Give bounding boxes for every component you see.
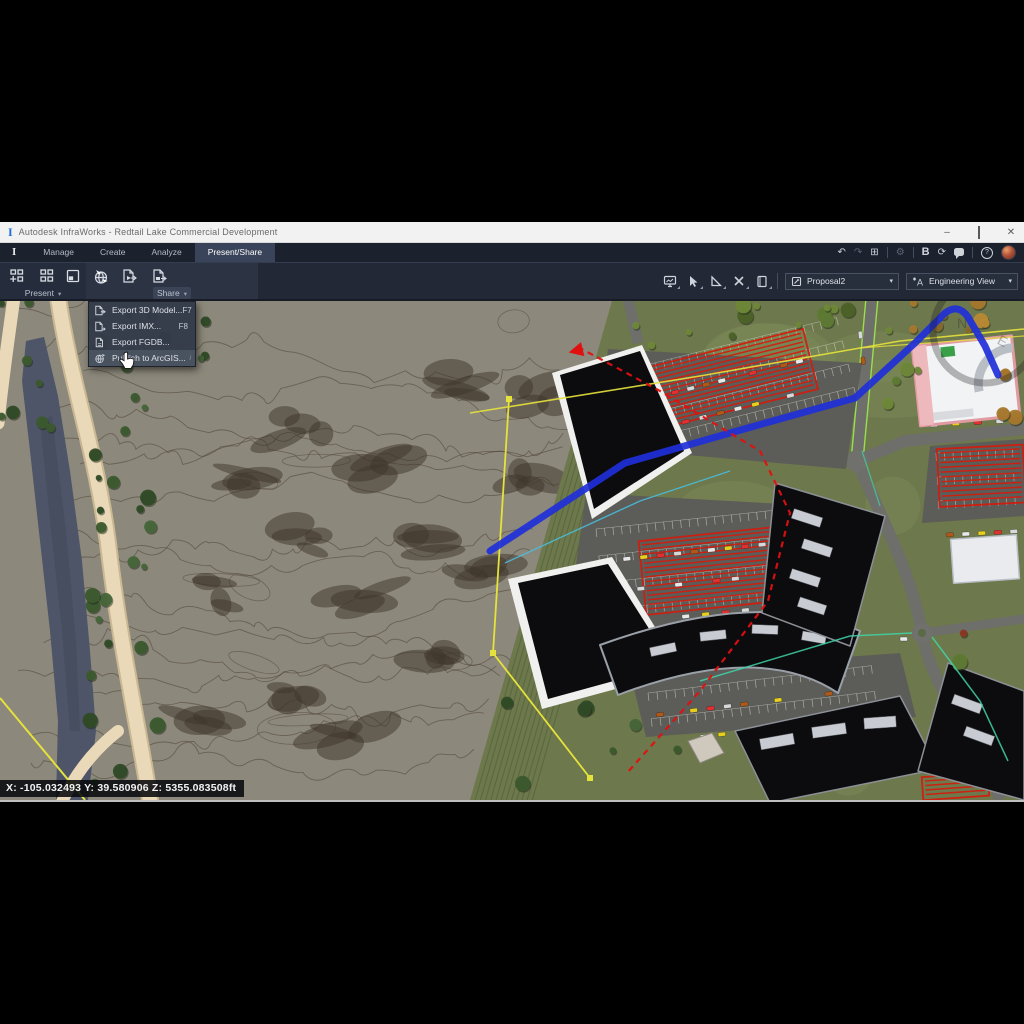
window-title: Autodesk InfraWorks - Redtail Lake Comme… (19, 227, 278, 237)
maximize-button[interactable] (972, 227, 986, 238)
minimize-button[interactable]: – (940, 227, 954, 238)
share-group-label[interactable]: Share▾ (86, 288, 258, 298)
windows-layout-icon[interactable]: ⊞ (870, 248, 878, 258)
redo-icon[interactable]: ↷ (854, 248, 862, 258)
chevron-down-icon: ▾ (1008, 277, 1012, 285)
storyboard-add-icon (9, 268, 25, 284)
flyout-tick-icon (746, 286, 749, 289)
sync-icon[interactable]: ⟳ (938, 248, 946, 258)
maximize-icon (978, 226, 980, 239)
share-group: Share▾ (86, 263, 258, 299)
render-frame-icon (65, 268, 81, 284)
ribbon-toolbar: Present▾ (0, 263, 1024, 301)
undo-icon[interactable]: ↶ (838, 248, 846, 258)
share-dropdown-open[interactable]: Share▾ (153, 287, 191, 299)
analysis-tool-button[interactable] (731, 273, 747, 289)
tab-analyze[interactable]: Analyze (139, 243, 195, 262)
view-style-icon: A (912, 276, 924, 287)
document-arrow-icon (94, 321, 106, 332)
menu-shortcut: F8 (179, 322, 195, 331)
chat-tail (956, 253, 962, 259)
select-tool-button[interactable] (685, 273, 701, 289)
menu-shortcut: F7 (182, 306, 198, 315)
storyboards-button[interactable] (36, 266, 58, 286)
set-square-icon (710, 275, 723, 287)
export-imx-button[interactable] (148, 266, 170, 286)
feedback-chat-icon[interactable] (954, 248, 964, 256)
title-bar[interactable]: I Autodesk InfraWorks - Redtail Lake Com… (0, 222, 1024, 243)
flyout-tick-icon (700, 286, 703, 289)
menu-item-publish-arcgis[interactable]: Publish to ArcGIS... i (89, 350, 195, 366)
app-window: I Autodesk InfraWorks - Redtail Lake Com… (0, 222, 1024, 802)
compass-north: N (957, 315, 967, 331)
export-model-button[interactable] (118, 266, 140, 286)
help-icon[interactable]: ? (981, 247, 993, 259)
menu-item-export-imx[interactable]: Export IMX... F8 (89, 318, 195, 334)
menu-item-export-fgdb[interactable]: Export FGDB... (89, 334, 195, 350)
svg-text:A: A (917, 277, 923, 287)
document-arrow-icon (151, 268, 168, 284)
viewport-3d-scene: N E (0, 301, 1024, 800)
present-label-text: Present (25, 288, 54, 298)
bim-b-icon[interactable]: B (922, 247, 930, 258)
user-avatar[interactable] (1001, 245, 1016, 260)
view-style-value: Engineering View (929, 276, 995, 286)
book-icon (756, 275, 768, 288)
monitor-icon (663, 275, 677, 288)
share-model-button[interactable] (90, 266, 112, 286)
flyout-tick-icon (723, 286, 726, 289)
proposal-select[interactable]: Proposal2 ▾ (785, 273, 899, 290)
separator (887, 247, 888, 258)
menu-item-label: Export 3D Model... (112, 305, 182, 315)
chevron-down-icon: ▾ (58, 291, 61, 298)
measure-tool-button[interactable] (708, 273, 724, 289)
flyout-tick-icon (677, 286, 680, 289)
chevron-down-icon: ▾ (184, 291, 187, 298)
journal-button[interactable] (754, 273, 770, 289)
view-tools: Proposal2 ▾ A Engineering View ▾ (662, 263, 1018, 299)
cursor-arrow-icon (687, 275, 699, 288)
storyboards-icon (39, 268, 55, 284)
model-viewport[interactable]: N E Export 3D Model... F7 Export (0, 301, 1024, 800)
separator (913, 247, 914, 258)
menu-item-export-3d-model[interactable]: Export 3D Model... F7 (89, 302, 195, 318)
view-style-select[interactable]: A Engineering View ▾ (906, 273, 1018, 290)
present-group: Present▾ (0, 263, 86, 299)
document-icon (94, 337, 106, 348)
document-export-icon (121, 268, 138, 284)
globe-publish-icon (94, 353, 106, 364)
proposal-value: Proposal2 (807, 276, 845, 286)
close-button[interactable]: ✕ (1004, 227, 1018, 238)
share-dropdown-menu: Export 3D Model... F7 Export IMX... F8 E… (88, 301, 196, 367)
quick-access-icons: ↶ ↷ ⊞ ⚙ B ⟳ ? (838, 243, 1016, 262)
share-globe-icon (92, 268, 110, 285)
separator (777, 273, 778, 289)
chevron-down-icon: ▾ (889, 277, 893, 285)
separator (972, 247, 973, 258)
screen: I Autodesk InfraWorks - Redtail Lake Com… (0, 0, 1024, 1024)
hand-cursor (118, 351, 138, 373)
infraworks-logo[interactable]: I (0, 243, 30, 262)
proposal-icon (791, 276, 802, 287)
present-group-label[interactable]: Present▾ (0, 288, 86, 298)
x-tool-icon (733, 275, 745, 287)
tab-manage[interactable]: Manage (30, 243, 87, 262)
coordinate-readout: X: -105.032493 Y: 39.580906 Z: 5355.0835… (0, 780, 244, 797)
ribbon-tab-bar: I Manage Create Analyze Present/Share ↶ … (0, 243, 1024, 263)
share-label-text: Share (157, 288, 180, 298)
render-frame-button[interactable] (62, 266, 84, 286)
tab-create[interactable]: Create (87, 243, 139, 262)
flyout-tick-icon (769, 286, 772, 289)
menu-item-label: Export IMX... (112, 321, 179, 331)
menu-item-label: Export FGDB... (112, 337, 188, 347)
document-export-icon (94, 305, 106, 316)
menu-info-mark: i (189, 355, 195, 362)
settings-gear-icon[interactable]: ⚙ (896, 248, 905, 258)
infraworks-app-icon: I (8, 225, 13, 240)
tab-present-share[interactable]: Present/Share (195, 243, 275, 262)
create-storyboard-button[interactable] (6, 266, 28, 286)
display-settings-button[interactable] (662, 273, 678, 289)
